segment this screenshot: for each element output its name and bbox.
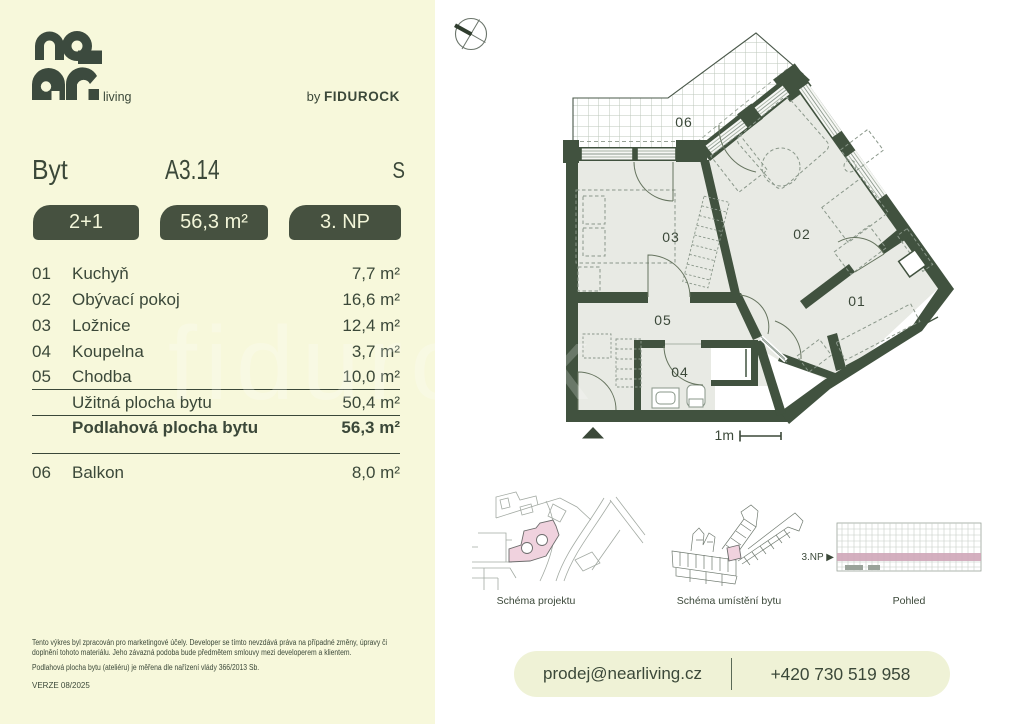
svg-text:01: 01 [848, 293, 866, 309]
svg-text:3.NP ▶: 3.NP ▶ [801, 552, 834, 563]
svg-text:03: 03 [662, 229, 680, 245]
svg-text:06: 06 [675, 114, 693, 130]
svg-text:02: 02 [793, 226, 811, 242]
svg-text:1m: 1m [715, 427, 734, 443]
svg-text:Schéma umístění bytu: Schéma umístění bytu [677, 595, 782, 607]
svg-text:Pohled: Pohled [893, 595, 926, 607]
svg-text:Schéma projektu: Schéma projektu [497, 595, 576, 607]
